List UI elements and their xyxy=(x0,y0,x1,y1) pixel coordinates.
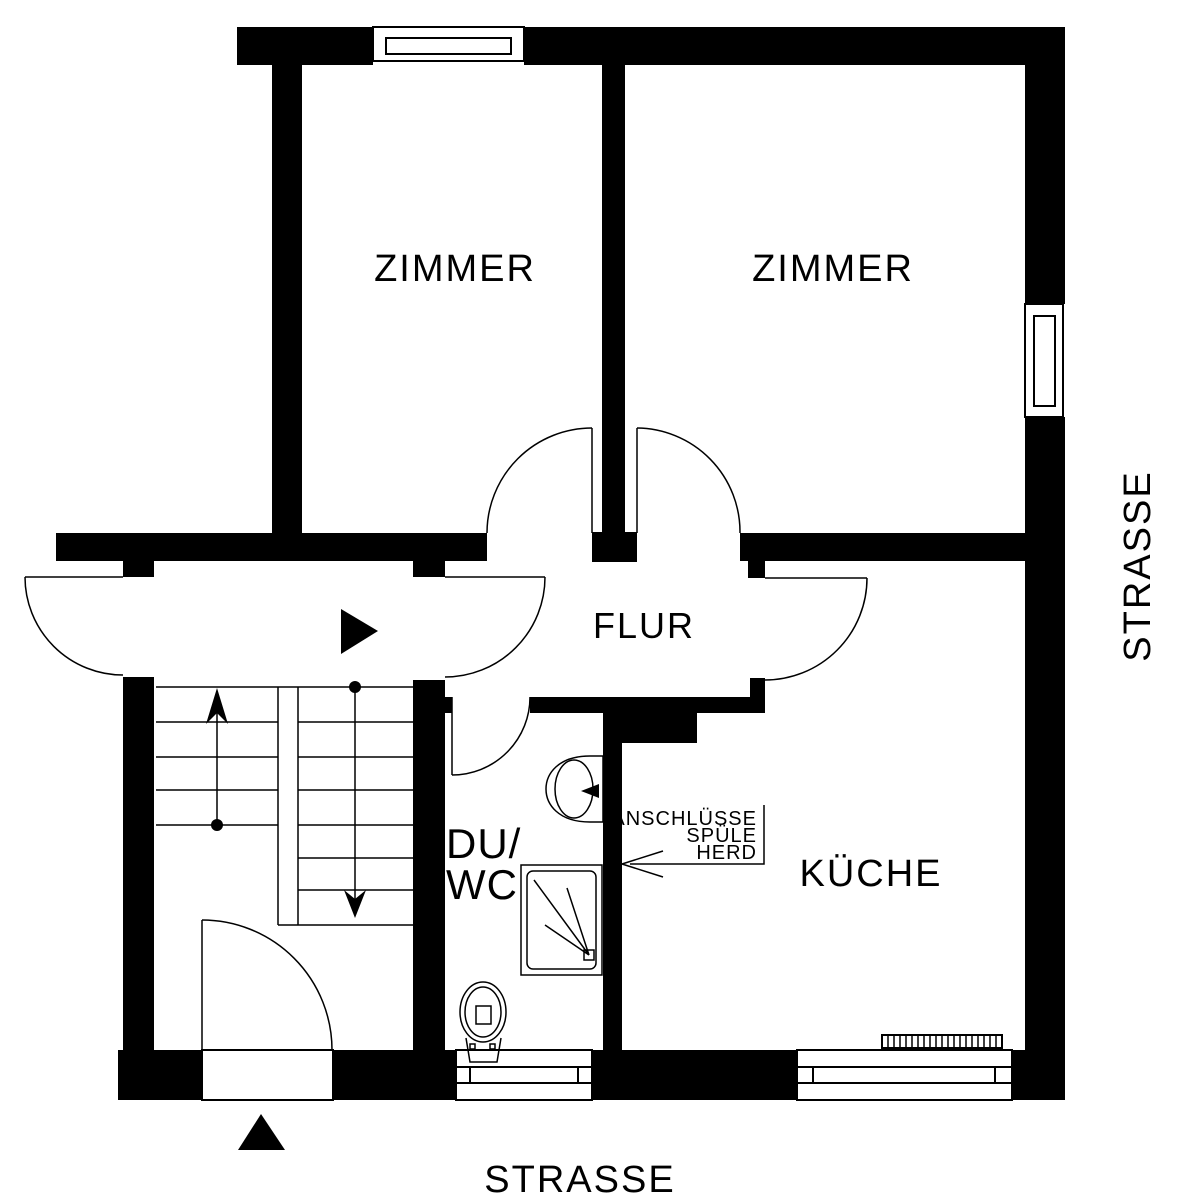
window-icon xyxy=(373,27,524,61)
toilet-bowl-inner xyxy=(465,987,501,1037)
connection-annotation: ANSCHLÜSSE SPÜLE HERD xyxy=(611,805,764,877)
label-zimmer-right: ZIMMER xyxy=(752,248,914,290)
door-exterior-left xyxy=(25,577,123,675)
door-swing-arc xyxy=(637,428,740,533)
wall-bottom-4 xyxy=(1012,1050,1065,1100)
label-flur: FLUR xyxy=(593,605,695,646)
wall-top-left xyxy=(237,27,373,65)
shower-icon xyxy=(521,865,602,975)
toilet-bowl-outer xyxy=(460,982,506,1042)
window-top-zimmer-left xyxy=(373,27,524,61)
shower-tray-outline xyxy=(521,865,602,975)
label-duwc-line1: DU/ xyxy=(446,820,521,867)
floorplan-drawing: ANSCHLÜSSE SPÜLE HERD ZIMMER ZIMMER FLUR… xyxy=(0,0,1177,1197)
wall-bottom-3 xyxy=(592,1050,797,1100)
wall-flur-south-left xyxy=(445,697,452,713)
door-zimmer-left xyxy=(487,428,592,533)
stair-stringer xyxy=(278,687,298,925)
wall-mid-band-right xyxy=(740,533,1025,561)
door-swing-arc xyxy=(487,428,592,533)
wall-top-right xyxy=(524,27,1065,65)
windows xyxy=(202,27,1063,1100)
wall-stair-west xyxy=(123,677,154,1050)
stairs-up-start-dot xyxy=(211,819,223,831)
label-strasse-bottom: STRASSE xyxy=(484,1159,675,1197)
wall-flur-south-right xyxy=(530,697,765,713)
entrance-threshold xyxy=(202,1050,333,1100)
radiator-kueche xyxy=(882,1035,1002,1048)
wall-between-zimmer xyxy=(602,65,625,532)
label-strasse-right: STRASSE xyxy=(1117,470,1159,661)
label-duwc-line2: WC xyxy=(446,861,518,908)
annotation-herd: HERD xyxy=(696,842,757,864)
wall-bottom-1 xyxy=(118,1050,202,1100)
wall-stair-east-stub xyxy=(413,561,445,577)
entrance-triangle xyxy=(238,1114,285,1150)
wall-kitchen-door-stub-top xyxy=(748,561,765,578)
stair-treads-right-flight xyxy=(298,722,415,890)
label-zimmer-left: ZIMMER xyxy=(374,248,536,290)
wall-stub-between-doors xyxy=(592,532,637,562)
staircase xyxy=(156,609,415,925)
door-swing-arc xyxy=(25,577,123,675)
toilet-flush xyxy=(476,1006,491,1024)
wall-duwc-east xyxy=(603,713,622,1050)
wall-stair-west-stub xyxy=(123,561,154,577)
label-kueche: KÜCHE xyxy=(799,853,942,895)
sink-icon xyxy=(546,756,603,822)
floorplan-page: ANSCHLÜSSE SPÜLE HERD ZIMMER ZIMMER FLUR… xyxy=(0,0,1177,1197)
wall-stair-east xyxy=(413,680,445,1050)
door-building-entrance xyxy=(202,920,332,1050)
toilet-bolt-right xyxy=(490,1044,495,1049)
door-kueche xyxy=(765,578,867,680)
door-duwc xyxy=(452,697,530,775)
wall-mid-band-left xyxy=(56,533,487,561)
window-bottom-duwc xyxy=(456,1050,592,1100)
radiator-fins xyxy=(888,1035,996,1048)
wall-west-upper xyxy=(272,65,302,533)
window-bottom-kueche xyxy=(797,1050,1012,1100)
door-swing-arc xyxy=(452,697,530,775)
bathroom-fixtures xyxy=(460,756,603,1062)
door-swing-arc xyxy=(202,920,332,1050)
landing-direction-triangle xyxy=(341,609,378,654)
wall-bottom-2 xyxy=(333,1050,456,1100)
sink-tap xyxy=(581,784,599,798)
door-apartment-entry xyxy=(445,577,545,677)
wall-east-lower xyxy=(1025,417,1065,1100)
window-icon xyxy=(1025,304,1063,417)
window-right-zimmer xyxy=(1025,304,1063,417)
door-swing-arc xyxy=(765,578,867,680)
toilet-bolt-left xyxy=(470,1044,475,1049)
window-icon xyxy=(456,1050,592,1100)
window-icon xyxy=(797,1050,1012,1100)
door-swing-arc xyxy=(445,577,545,677)
shower-spray-lines xyxy=(534,880,589,955)
walls xyxy=(56,27,1065,1100)
stairs-down-start-dot xyxy=(349,681,361,693)
wall-east-upper xyxy=(1025,65,1065,304)
door-zimmer-right xyxy=(637,428,740,533)
